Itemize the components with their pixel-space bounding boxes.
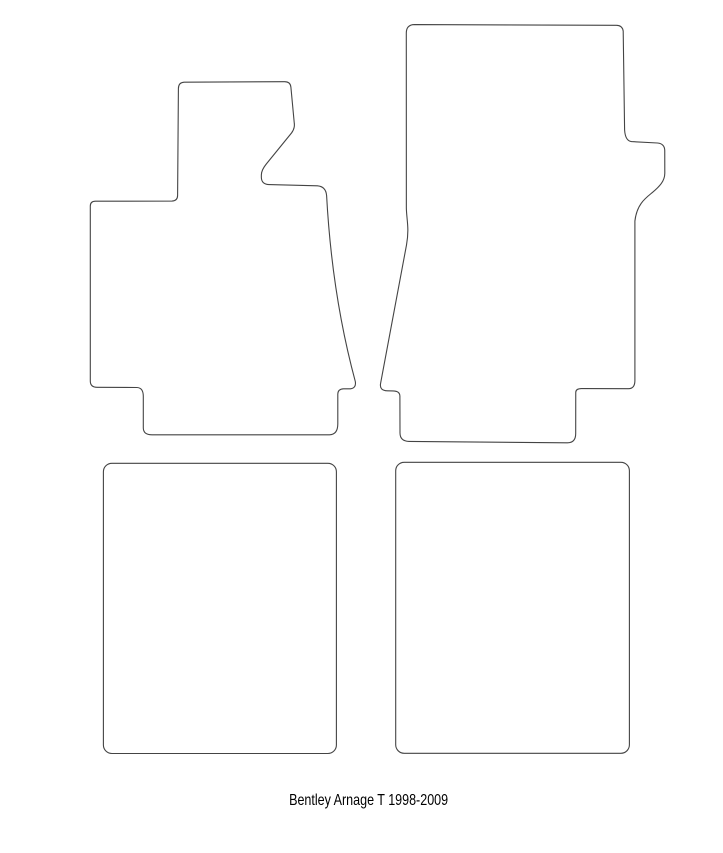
svg-text:Bentley Arnage T 1998-2009: Bentley Arnage T 1998-2009 [289,792,448,809]
